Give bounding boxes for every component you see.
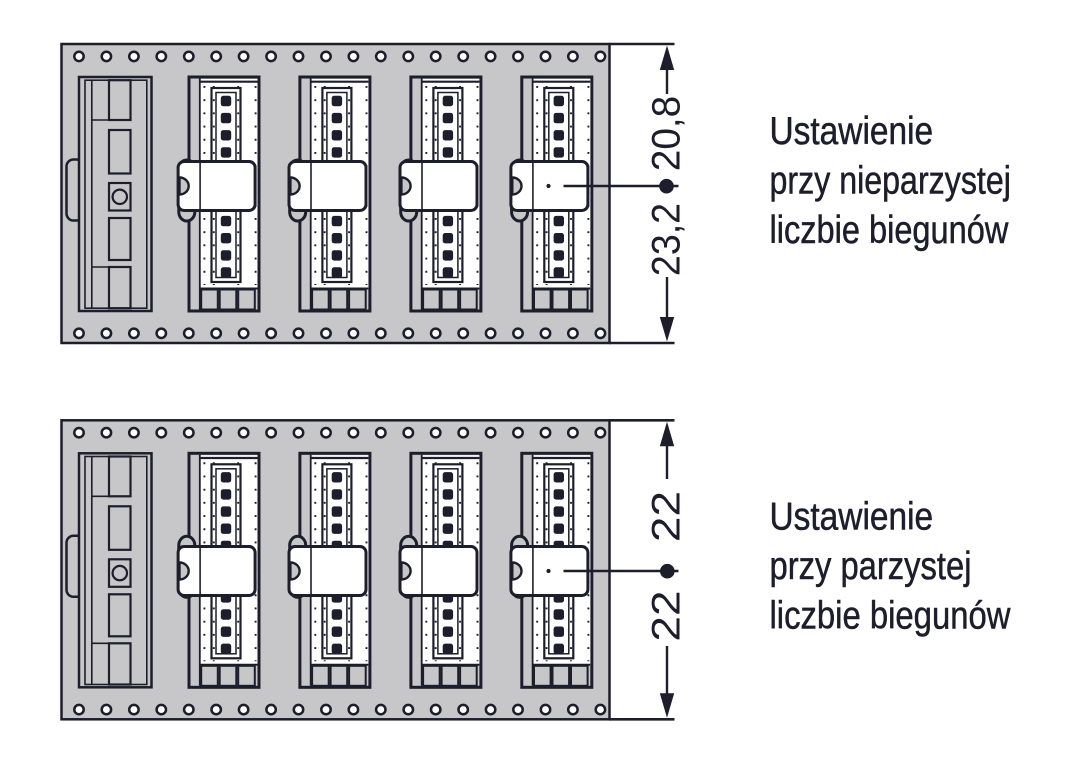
svg-text:23,2: 23,2 (644, 203, 688, 276)
svg-text:liczbie biegunów: liczbie biegunów (770, 207, 1010, 252)
svg-text:przy parzystej: przy parzystej (770, 543, 972, 587)
svg-text:22: 22 (644, 590, 689, 641)
svg-text:przy nieparzystej: przy nieparzystej (770, 159, 1011, 203)
svg-text:22: 22 (644, 491, 689, 542)
svg-text:Ustawienie: Ustawienie (770, 109, 934, 153)
svg-text:20,8: 20,8 (644, 96, 689, 171)
svg-text:Ustawienie: Ustawienie (770, 494, 934, 538)
svg-text:liczbie biegunów: liczbie biegunów (770, 593, 1012, 637)
